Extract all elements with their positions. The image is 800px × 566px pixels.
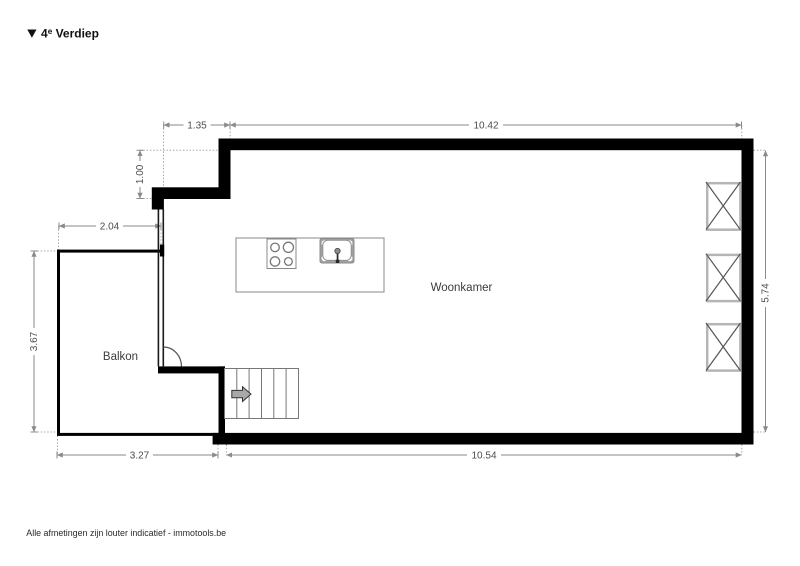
svg-text:1.35: 1.35 — [187, 121, 207, 132]
svg-text:10.54: 10.54 — [471, 451, 496, 462]
svg-text:3.67: 3.67 — [29, 331, 40, 351]
svg-text:Balkon: Balkon — [103, 351, 138, 363]
svg-text:2.04: 2.04 — [100, 222, 120, 233]
svg-text:5.74: 5.74 — [761, 283, 772, 303]
svg-text:Woonkamer: Woonkamer — [431, 282, 493, 294]
svg-text:1.00: 1.00 — [135, 164, 146, 184]
svg-text:10.42: 10.42 — [473, 121, 498, 132]
svg-text:Alle afmetingen zijn louter in: Alle afmetingen zijn louter indicatief -… — [26, 528, 226, 538]
svg-text:3.27: 3.27 — [130, 451, 150, 462]
